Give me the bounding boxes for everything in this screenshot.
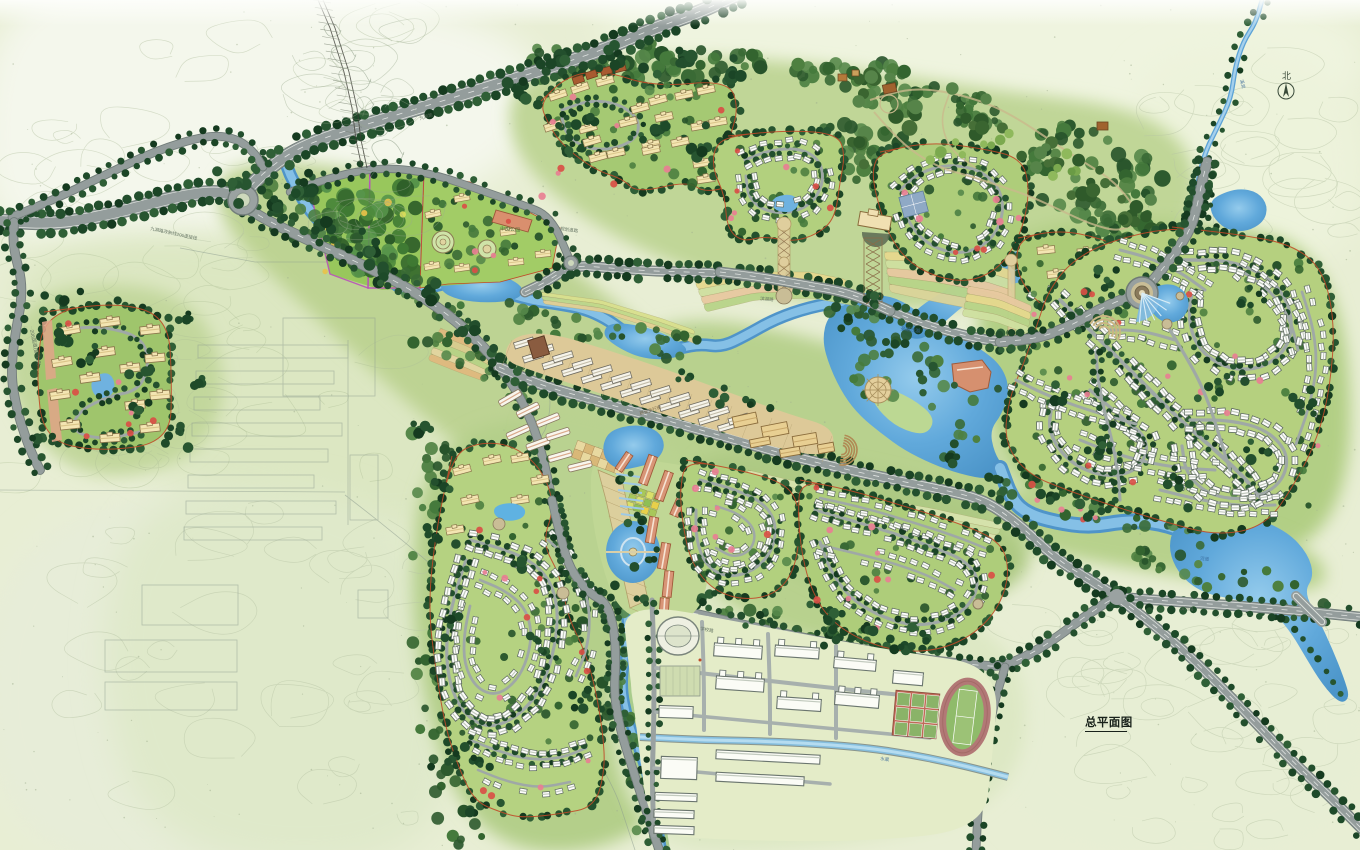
svg-text:总平面图: 总平面图	[1085, 715, 1133, 729]
svg-text:北: 北	[1282, 71, 1291, 81]
